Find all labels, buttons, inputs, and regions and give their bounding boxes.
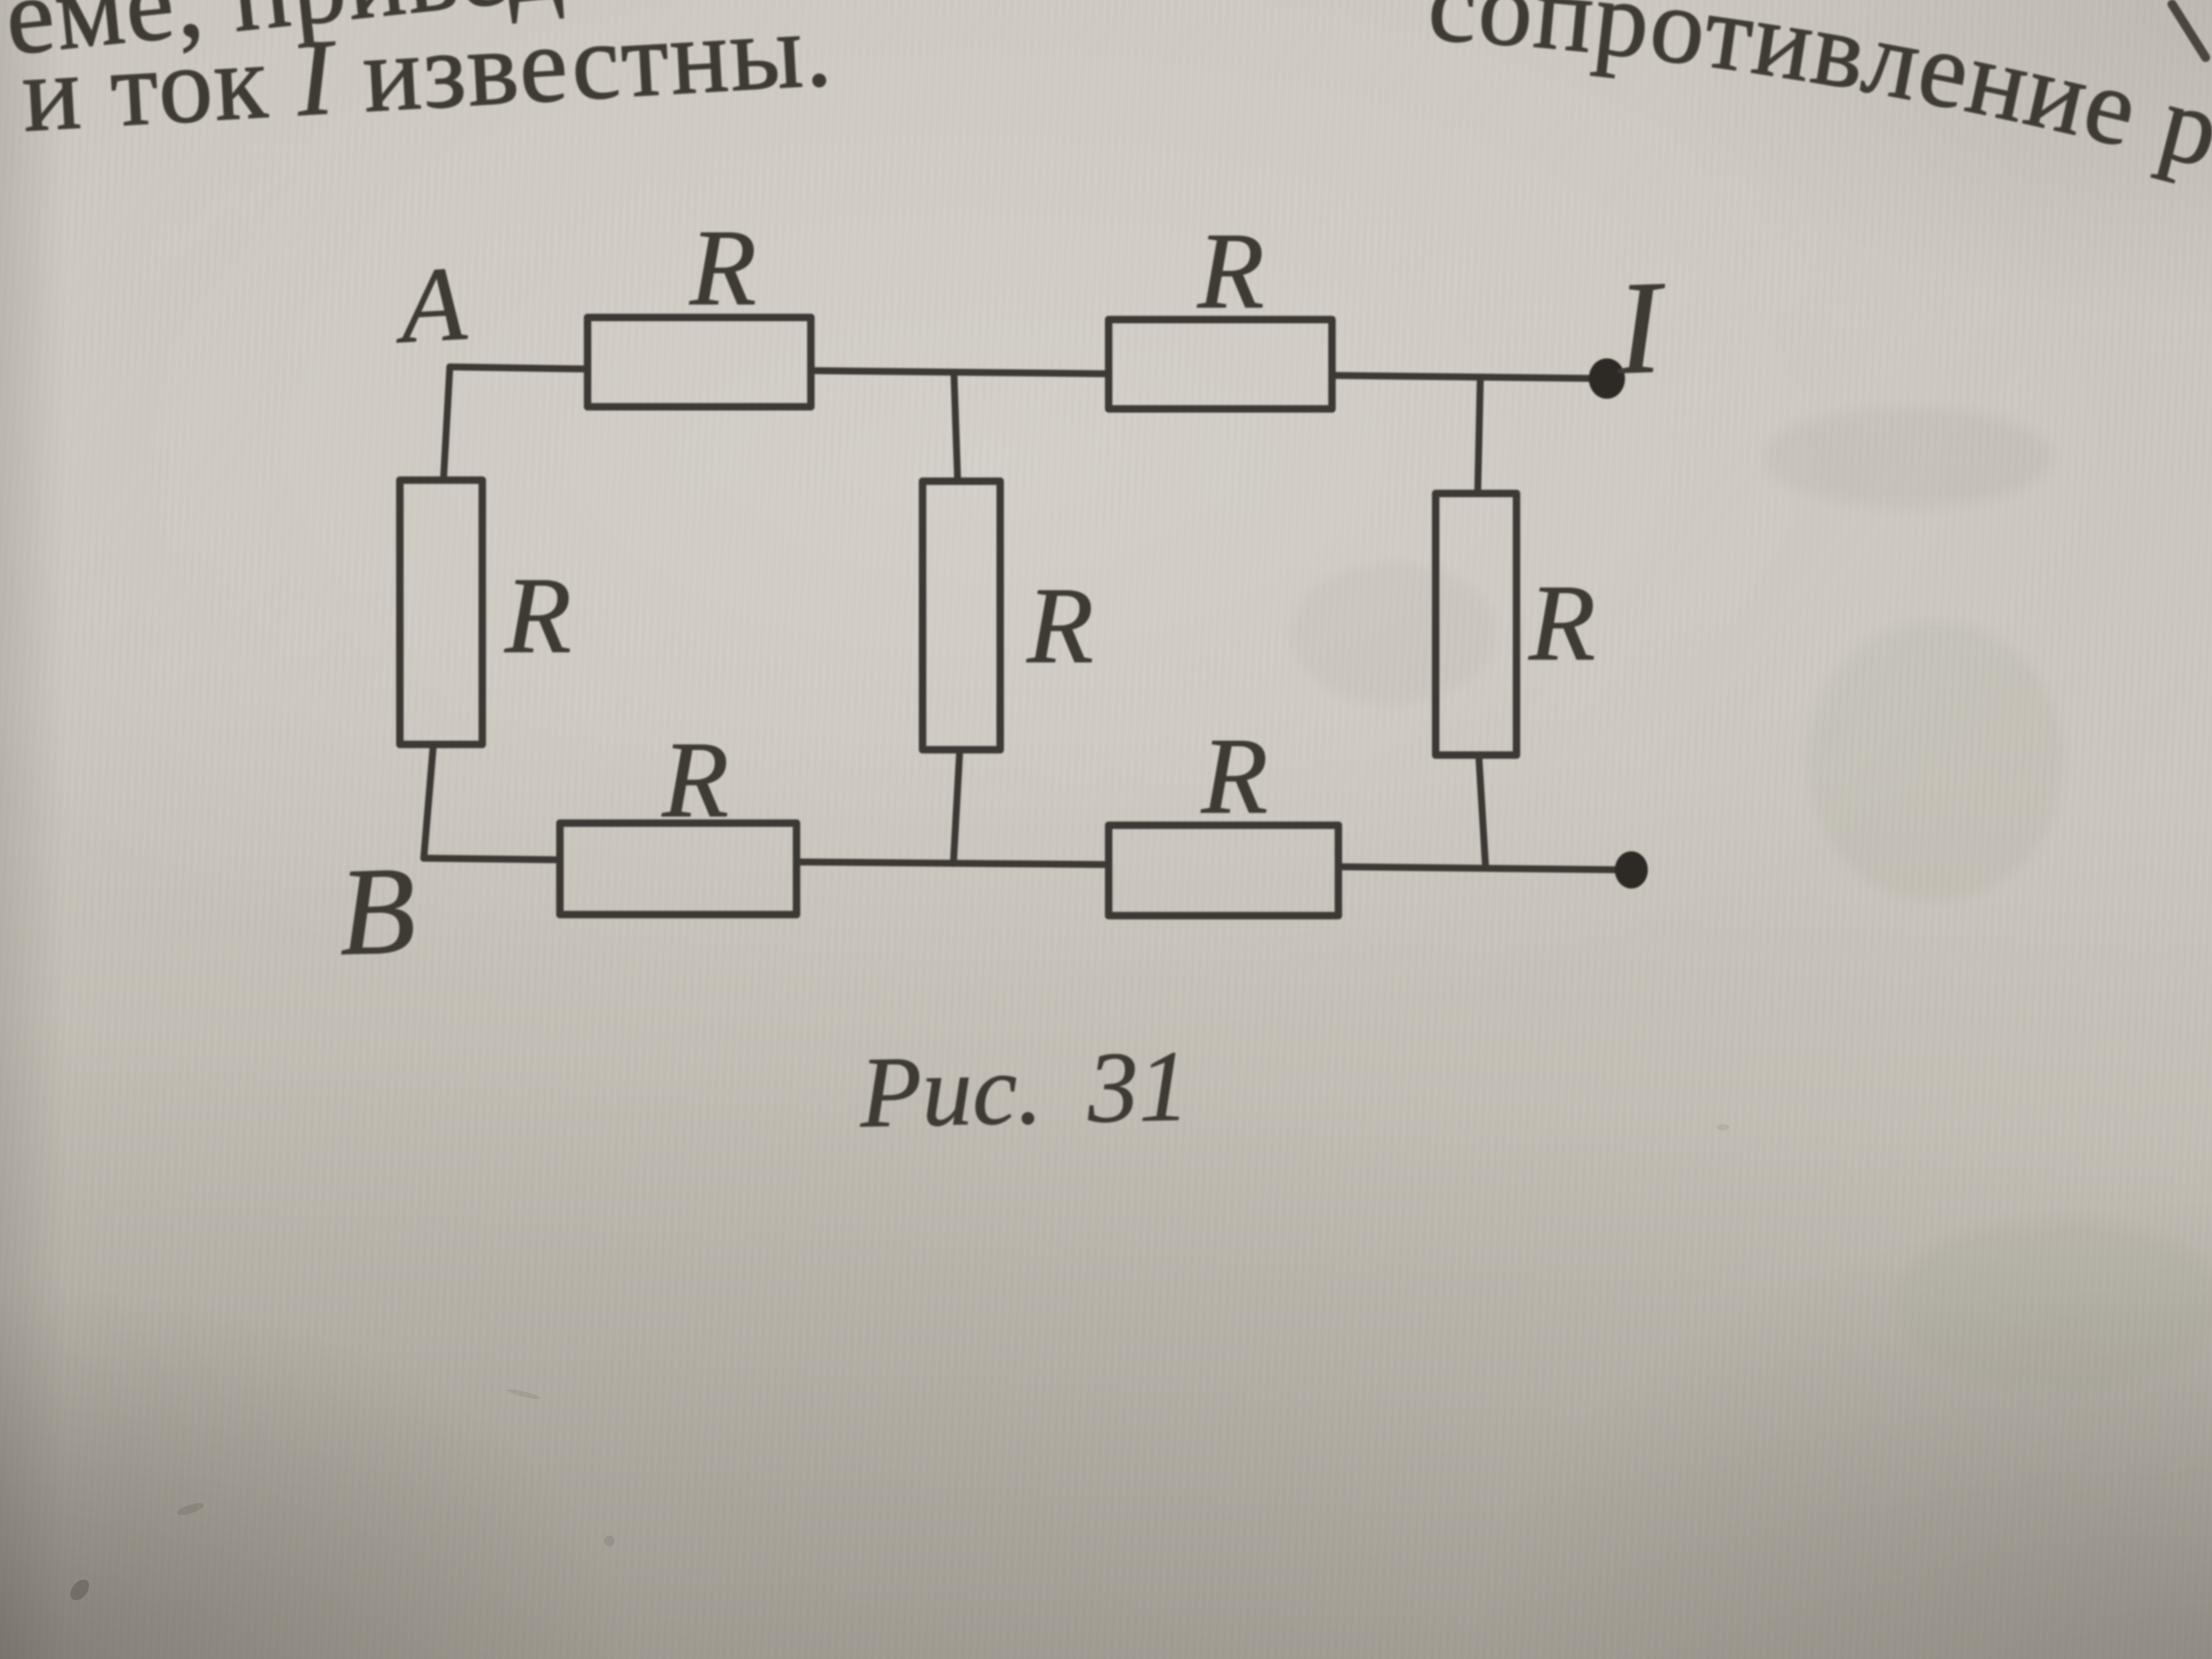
wire-bottom-rail-segment-1 — [424, 858, 560, 860]
resistor-middle-vertical — [923, 481, 1000, 750]
resistor-r-label-middle-vertical: R — [1026, 565, 1093, 686]
terminal-dot-bottom — [1615, 851, 1648, 889]
node-a-label: A — [392, 245, 469, 366]
book-page-photo: еме, приведенной сопротивление резист и … — [0, 0, 2212, 1659]
resistor-r-label-bottom-left: R — [661, 719, 728, 840]
problem-text: еме, приведенной сопротивление резист и … — [0, 0, 2212, 205]
cut-letter-fragment — [2172, 4, 2206, 57]
figure-caption: Рис. 31 — [858, 1030, 1190, 1149]
wire-top-rail-segment-3 — [1332, 375, 1607, 379]
page-showthrough-ghosts — [1292, 407, 2212, 1388]
wire-middle-branch-upper — [954, 372, 958, 481]
wire-middle-branch-lower — [953, 750, 960, 864]
paper-speck — [604, 1536, 615, 1546]
resistor-r-label-top-right: R — [1196, 211, 1264, 331]
paper-speck — [507, 1387, 541, 1401]
resistor-r-label-top-left: R — [689, 207, 756, 328]
resistor-top-left — [588, 317, 811, 407]
paper-speck — [176, 1501, 205, 1517]
paper-speck — [1716, 1124, 1729, 1130]
showthrough-smudge — [1765, 407, 2052, 508]
paper-speck — [66, 1576, 93, 1604]
showthrough-smudge — [1292, 564, 1494, 702]
wire-top-rail-segment-1 — [450, 367, 588, 369]
wire-right-branch-upper — [1478, 377, 1480, 493]
resistor-r-label-bottom-right: R — [1200, 716, 1268, 836]
wire-top-rail-segment-2 — [811, 371, 1109, 374]
node-b-label: B — [337, 841, 418, 982]
resistor-r-label-left-vertical: R — [504, 555, 571, 676]
resistor-left-vertical — [400, 480, 482, 744]
wire-left-branch-lower — [424, 744, 433, 858]
resistor-r-label-right-vertical: R — [1528, 563, 1595, 683]
wire-left-branch-upper — [443, 367, 450, 480]
paper-specks — [66, 1124, 1729, 1604]
current-i-label: I — [1614, 253, 1670, 402]
resistor-top-right — [1109, 320, 1332, 409]
wire-right-branch-lower — [1479, 755, 1486, 868]
showthrough-smudge — [1808, 622, 2063, 899]
showthrough-smudge — [1898, 1218, 2212, 1388]
resistor-bottom-right — [1109, 825, 1338, 916]
